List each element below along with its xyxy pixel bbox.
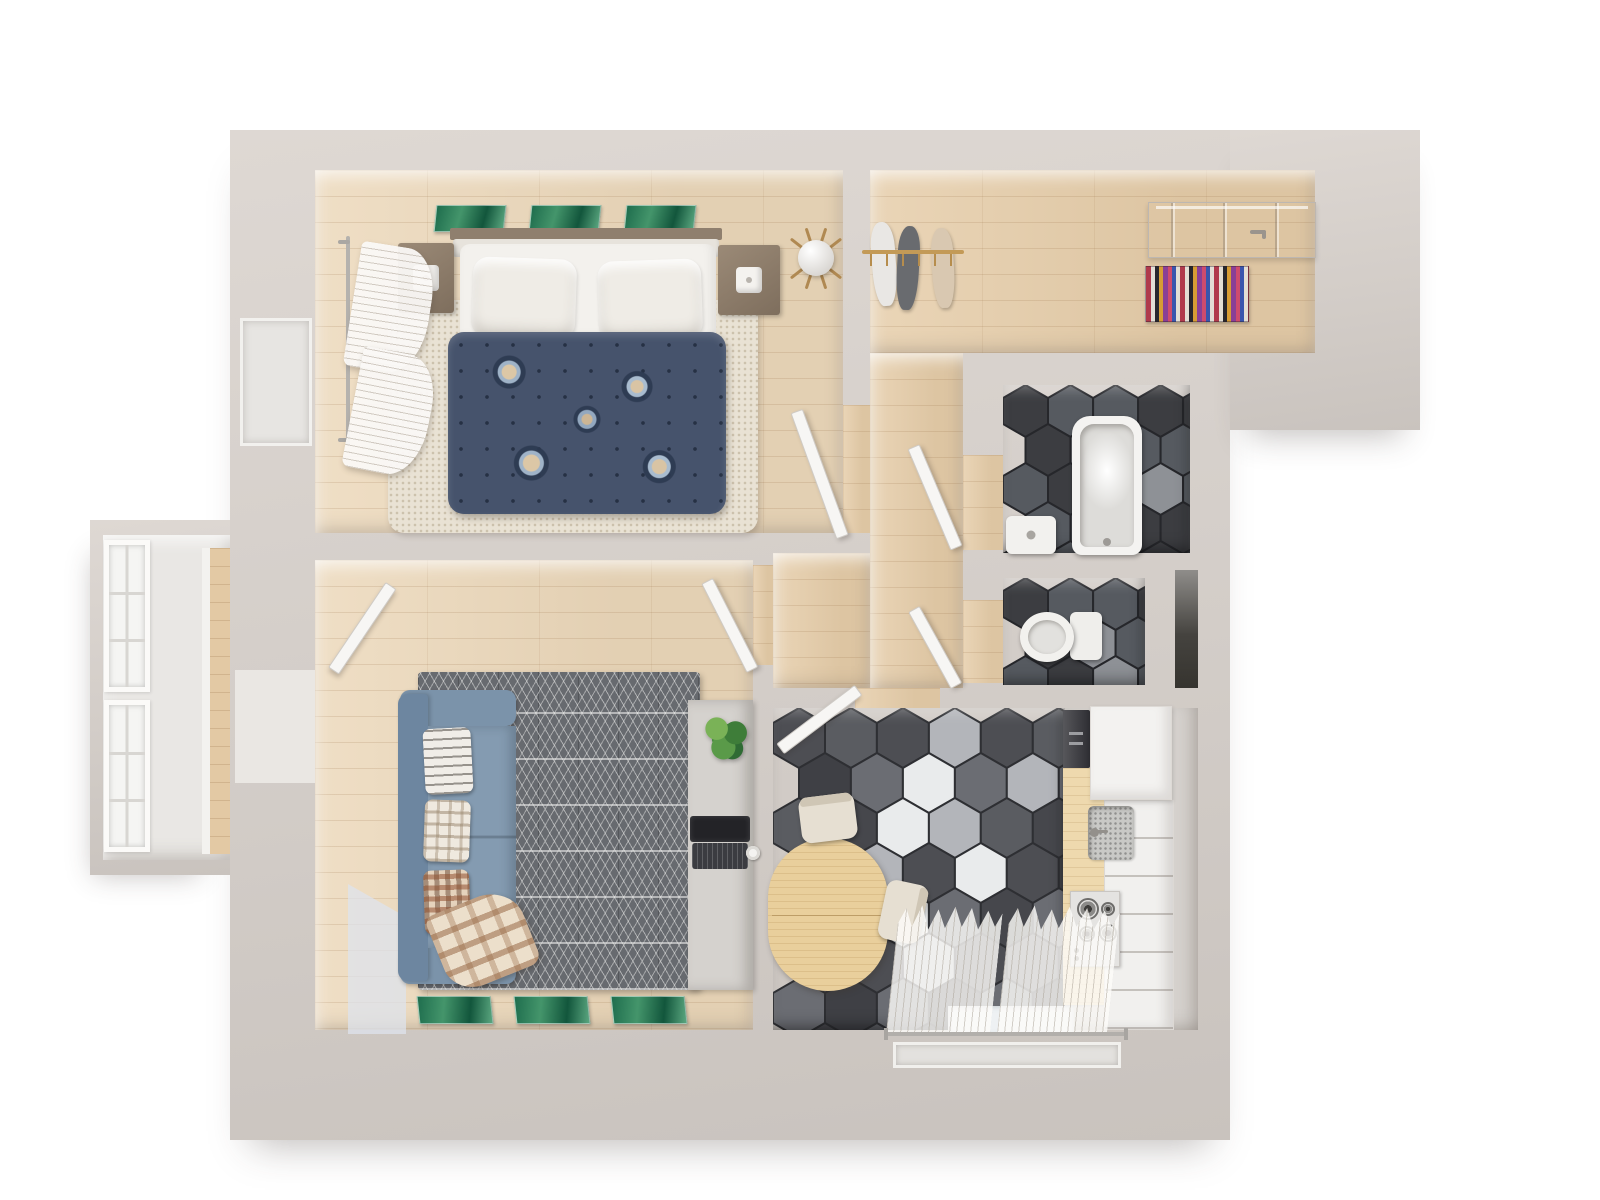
bathtub-faucet	[1103, 538, 1111, 546]
living-room-painting-2	[514, 996, 591, 1024]
coat-rack-hook	[918, 254, 920, 266]
floor-plan-render	[0, 0, 1600, 1200]
curtain-rod-end	[884, 1028, 888, 1040]
coat-rack-hook	[886, 254, 888, 266]
balcony-inner-window-frame	[202, 548, 210, 854]
washbasin	[1006, 516, 1056, 554]
wc-doorway	[963, 600, 1003, 683]
laptop	[690, 816, 750, 870]
toilet-bowl	[1020, 612, 1074, 662]
laptop-screen	[690, 816, 750, 842]
balcony-window-1	[104, 540, 150, 692]
kitchen-sink-spout	[1096, 830, 1108, 833]
coat-rack-hook	[902, 254, 904, 266]
toilet-tank	[1070, 612, 1102, 660]
window-mullion	[126, 705, 129, 847]
nightstand-right	[718, 245, 780, 315]
sofa-pillow-plaid	[423, 799, 471, 863]
living-room-painting-3	[611, 996, 688, 1024]
bedroom-window	[240, 318, 312, 446]
dining-table-seam	[772, 915, 884, 916]
window-mullion	[109, 799, 145, 802]
coat-rack-hook	[950, 254, 952, 266]
toilet-seat	[1028, 620, 1066, 654]
kitchen-cabinet-block	[1090, 706, 1172, 800]
window-mullion	[109, 592, 145, 595]
front-door-top-rail	[1156, 206, 1308, 209]
bed-pillow-left	[471, 256, 578, 340]
kitchen-curtain-rod	[886, 1032, 1126, 1036]
closet-niche	[1175, 570, 1198, 688]
balcony-doorway	[235, 670, 315, 783]
window-mullion	[109, 752, 145, 755]
bathtub	[1072, 416, 1142, 555]
mug	[746, 846, 760, 860]
dining-chair-top	[797, 792, 858, 844]
coat-rack-rod	[862, 250, 964, 254]
table-lamp-right	[736, 267, 762, 293]
front-door	[1148, 202, 1316, 258]
appliance-handle	[1069, 732, 1083, 735]
dining-table-oval	[768, 838, 888, 991]
front-door-handle	[1250, 230, 1266, 234]
floor-lamp-globe	[798, 240, 834, 276]
coat-rack-hook	[870, 254, 872, 266]
curtain-rod-end	[1124, 1028, 1128, 1040]
potted-plant	[700, 712, 752, 764]
bed-pillow-right	[597, 258, 704, 342]
balcony-wood-floor-strip	[210, 548, 230, 854]
bedroom-doorway	[843, 405, 870, 533]
window-mullion	[126, 545, 129, 687]
bathtub-basin	[1080, 424, 1134, 547]
balcony-window-2	[104, 700, 150, 852]
kitchen-tall-appliance	[1063, 710, 1090, 768]
washbasin-tap	[1027, 531, 1036, 540]
corridor-floor-lower	[773, 553, 870, 688]
window-mullion	[109, 639, 145, 642]
bathroom-doorway	[963, 455, 1003, 550]
curtain-rod-bracket	[338, 240, 350, 244]
laptop-keyboard	[692, 843, 748, 869]
living-room-doorway	[753, 565, 773, 665]
appliance-handle	[1069, 742, 1083, 745]
entry-striped-doormat	[1145, 266, 1249, 322]
kitchen-window	[893, 1042, 1121, 1068]
kitchen-doorway	[855, 688, 940, 708]
bed-duvet-floral	[448, 332, 726, 514]
coat-rack-hook	[934, 254, 936, 266]
living-room-painting-1	[417, 996, 494, 1024]
sofa-pillow-striped	[422, 727, 473, 795]
